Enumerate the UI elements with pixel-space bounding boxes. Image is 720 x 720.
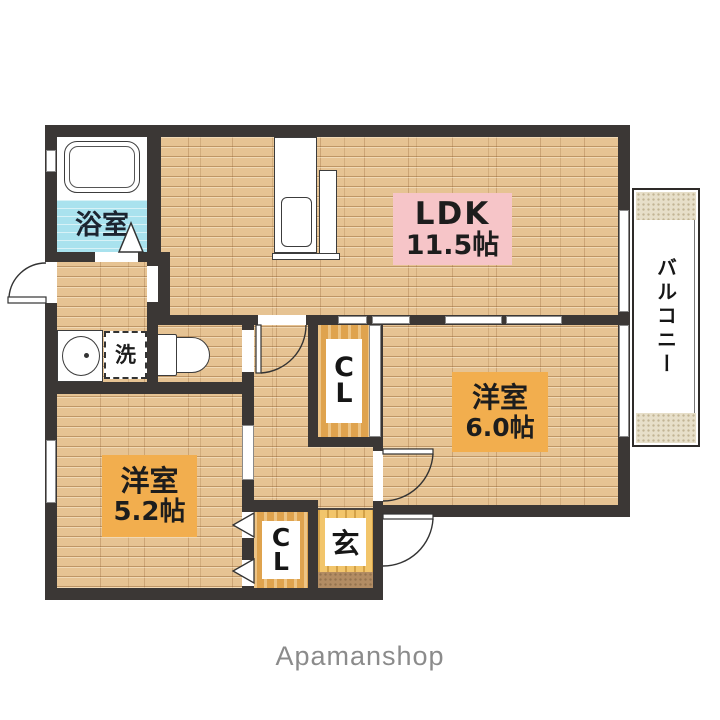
opening-hall-door [258,315,306,325]
wall-bottom-room6 [373,505,630,517]
opening-room5-door [242,425,254,480]
toilet-tank [155,334,177,376]
floor-plan: 浴室 バルコニー 洗 C L C L 玄 [0,0,720,720]
closet-mid-label-l: L [335,381,352,407]
bathroom-label: 浴室 [75,211,129,240]
wall-left [45,125,57,600]
sliding-door-ldk-3 [445,316,502,324]
kitchen-side-unit [319,170,337,255]
balcony-texture-bottom [636,413,696,443]
wall-top [45,125,630,137]
side-door-panel [8,297,46,303]
window-room5-left [46,440,56,503]
side-door-arc [9,263,46,297]
watermark: Apamanshop [0,641,720,672]
opening-room6-door [373,451,383,501]
wall-closet-mid-left [308,315,318,447]
ldk-name: LDK [415,198,491,231]
genkan-label: 玄 [331,522,359,562]
window-bath-left [46,150,56,172]
bathroom-floor: 浴室 [57,200,147,252]
opening-side-door [45,262,57,303]
closet-mid-door-strip [369,325,381,437]
room5-label: 洋室 5.2帖 [102,455,197,537]
wall-closet-bottom-top [242,500,318,512]
kitchen-base-strip [272,253,340,260]
washbasin [62,336,100,376]
room5-name: 洋室 [120,466,178,497]
laundry-label: 洗 [115,344,136,367]
closet-mid-labelbox: C L [326,339,362,423]
sliding-door-ldk-1 [338,316,367,324]
genkan-step [318,572,373,588]
opening-washroom-door [147,266,158,302]
washbasin-drain-dot [84,353,89,358]
sliding-door-ldk-2 [372,316,410,324]
kitchen-sink [281,197,312,247]
ldk-area: 11.5帖 [406,231,500,260]
balcony-texture-top [636,192,696,220]
wall-bath-right [147,125,161,262]
genkan-floor: 玄 [318,508,373,572]
opening-closet-bottom-a [242,512,254,538]
closet-mid: C L [318,325,369,437]
room6-area: 6.0帖 [465,414,534,441]
wall-closet-mid-bottom [308,437,382,447]
closet-bottom-labelbox: C L [262,521,300,579]
balcony-label: バルコニー [652,257,681,377]
wall-genkan-left [308,500,318,600]
washing-machine-space: 洗 [104,331,147,379]
wall-bottom [45,588,383,600]
wall-room5-top [45,382,254,394]
closet-bottom-label-l: L [273,550,289,574]
sliding-door-ldk-4 [506,316,562,324]
window-balcony-upper [619,210,629,312]
wall-right [618,125,630,517]
opening-toilet-door [242,330,254,372]
room6-label: 洋室 6.0帖 [452,372,548,452]
balcony-label-wrap: バルコニー [634,220,698,413]
balcony: バルコニー [632,188,700,447]
closet-bottom: C L [254,512,308,588]
bathtub-inner-line [69,146,135,188]
window-balcony-lower [619,325,629,437]
genkan-labelbox: 玄 [325,518,366,566]
room6-name: 洋室 [472,383,528,413]
wall-genkan-right [373,505,383,600]
opening-closet-bottom-b [242,560,254,586]
bathtub [64,141,140,193]
room5-area: 5.2帖 [113,498,185,526]
ldk-label: LDK 11.5帖 [393,193,512,265]
exterior-cutout [383,517,623,592]
wall-bath-bottom-a [45,252,95,262]
opening-bath-door [95,252,138,262]
